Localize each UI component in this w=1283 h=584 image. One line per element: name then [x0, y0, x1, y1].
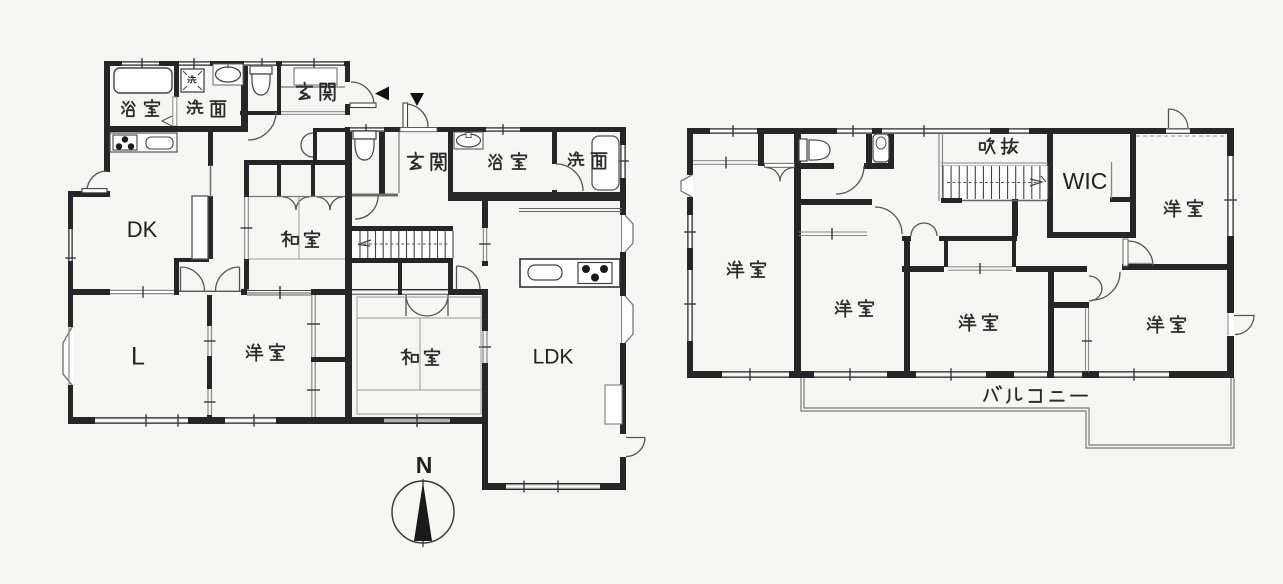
svg-text:N: N: [416, 452, 433, 478]
svg-text:L: L: [131, 343, 145, 371]
svg-text:DK: DK: [127, 217, 158, 242]
svg-text:WIC: WIC: [1063, 168, 1108, 194]
svg-text:LDK: LDK: [533, 346, 574, 369]
